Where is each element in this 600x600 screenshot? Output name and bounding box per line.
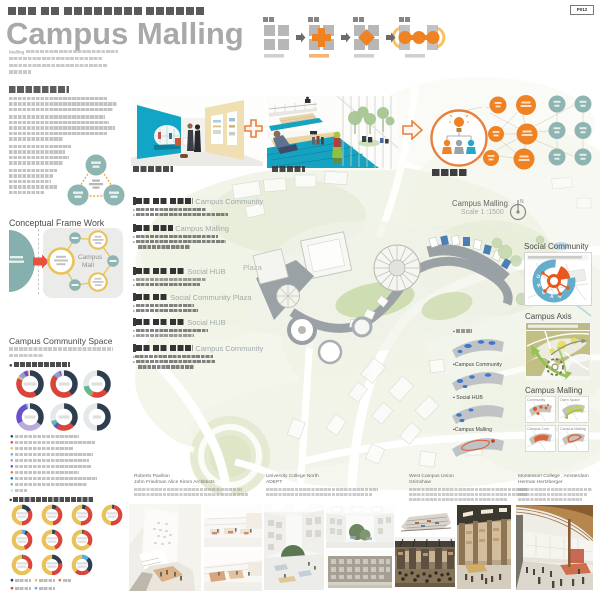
svg-text:Campus Core: Campus Core (527, 427, 549, 431)
svg-text:Campus Malling: Campus Malling (560, 427, 586, 431)
svg-text:N: N (520, 199, 524, 205)
svg-text:Plaza: Plaza (243, 263, 263, 272)
svg-text:Open Space: Open Space (560, 398, 580, 402)
svg-text:Community: Community (527, 398, 545, 402)
svg-text:Campus: Campus (78, 254, 103, 261)
svg-text:Mall: Mall (82, 262, 94, 269)
